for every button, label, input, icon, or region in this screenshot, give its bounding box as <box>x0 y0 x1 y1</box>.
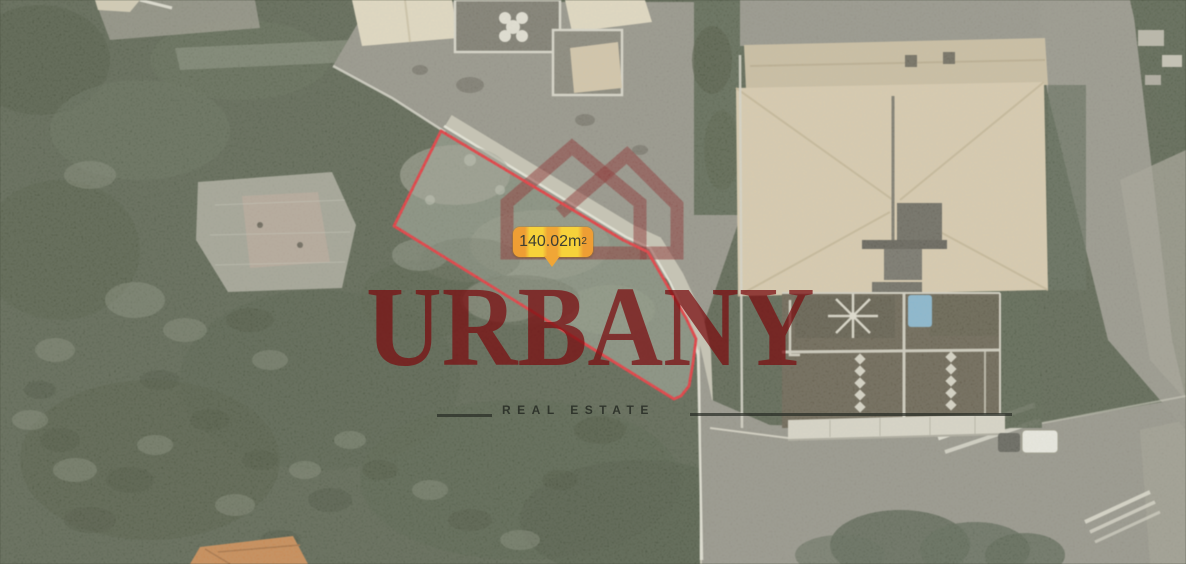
area-measurement-label: 140.02 m2 <box>513 227 593 257</box>
area-value: 140.02 <box>519 234 568 250</box>
aerial-property-photo: URBANY REAL ESTATE 140.02 m2 <box>0 0 1186 564</box>
aerial-scene <box>0 0 1186 564</box>
area-label-pointer <box>544 256 560 267</box>
noise-overlay <box>0 0 1186 564</box>
area-unit: m <box>568 234 581 250</box>
